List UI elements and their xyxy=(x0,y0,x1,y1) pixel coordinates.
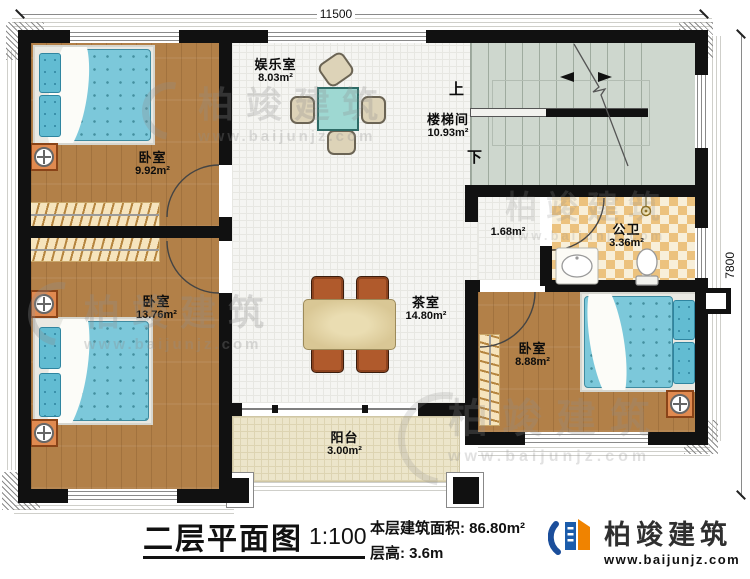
window xyxy=(68,489,177,503)
chair xyxy=(290,96,315,124)
wall-segment xyxy=(219,293,232,503)
room-label-bedroom1: 卧室9.92m² xyxy=(110,150,195,178)
lamp-icon xyxy=(670,394,690,414)
room-label-entertainment: 娱乐室8.03m² xyxy=(233,57,318,85)
column-marker xyxy=(446,472,484,508)
chair xyxy=(356,346,389,373)
wardrobe xyxy=(30,202,160,227)
stair-up-label: 上 xyxy=(449,78,464,99)
wall-segment xyxy=(426,30,708,43)
wall-segment xyxy=(18,43,31,503)
bed-pillow xyxy=(39,53,61,93)
top-dimension-value: 11500 xyxy=(286,7,386,21)
nightstand xyxy=(30,290,58,318)
wall-segment xyxy=(695,148,708,228)
wall-segment xyxy=(232,403,242,416)
room-label-bedroom2: 卧室13.76m² xyxy=(114,294,199,322)
sliding-door-stop xyxy=(362,405,368,413)
bottom-right-sill-lines xyxy=(478,447,710,456)
wall-segment xyxy=(465,280,480,292)
plan-scale: 1:100 xyxy=(309,523,367,550)
plan-title: 二层平面图 xyxy=(143,514,303,558)
floor-plan-canvas: 卧室9.92m² 娱乐室8.03m² 楼梯间10.93m² 上 下 1.68m²… xyxy=(0,0,750,579)
right-dimension-value: 7800 xyxy=(723,252,737,279)
lamp-icon xyxy=(34,423,54,443)
sliding-door-stop xyxy=(272,405,278,413)
bed-pillow xyxy=(39,95,61,137)
room-label-bathroom: 公卫3.36m² xyxy=(584,222,669,250)
nightstand xyxy=(666,390,694,418)
window xyxy=(525,432,648,445)
brand-website: www.baijunjz.com xyxy=(604,552,740,567)
wall-segment xyxy=(695,30,708,75)
right-dimension-line xyxy=(741,35,742,497)
floor-height-text: 层高: 3.6m xyxy=(370,542,443,563)
window xyxy=(268,30,426,43)
chair xyxy=(361,96,386,124)
bed-pillow xyxy=(673,342,695,384)
stair-mid-bar xyxy=(546,109,648,117)
window xyxy=(695,228,708,278)
bed-pillow xyxy=(39,327,61,369)
chair xyxy=(311,346,344,373)
wall-segment xyxy=(219,43,232,165)
wall-segment xyxy=(545,280,708,292)
brand-text: 柏竣建筑 www.baijunjz.com xyxy=(604,513,740,567)
column-core xyxy=(232,478,249,503)
right-sill-lines xyxy=(712,36,721,441)
bottom-left-sill-lines xyxy=(14,505,234,514)
lamp-icon xyxy=(34,147,54,167)
chair xyxy=(327,130,356,155)
bedroom3-bed xyxy=(580,292,701,392)
room-label-stairwell: 楼梯间10.93m² xyxy=(403,112,493,140)
wall-segment xyxy=(418,403,478,416)
room-label-tearoom: 茶室14.80m² xyxy=(382,295,470,323)
wall-bump-out xyxy=(701,288,731,314)
window xyxy=(695,75,708,148)
wall-segment xyxy=(179,30,268,43)
bedroom1-bed xyxy=(33,45,155,145)
bed-pillow xyxy=(673,300,695,340)
nightstand xyxy=(30,419,58,447)
stair-down-label: 下 xyxy=(467,146,482,167)
nightstand xyxy=(30,143,58,171)
brand-logo xyxy=(548,510,600,562)
room-label-hallway: 1.68m² xyxy=(477,226,539,239)
bed-pillow xyxy=(39,373,61,417)
wall-segment xyxy=(18,489,68,503)
bedroom2-bed xyxy=(33,317,153,425)
lamp-icon xyxy=(34,294,54,314)
wall-segment xyxy=(465,185,708,197)
wall-segment xyxy=(465,432,525,445)
column-core xyxy=(453,477,479,504)
left-sill-lines xyxy=(7,50,16,470)
brand-logo-icon xyxy=(548,510,600,562)
room-label-bedroom3: 卧室8.88m² xyxy=(490,341,575,369)
game-table xyxy=(317,87,359,131)
brand-name: 柏竣建筑 xyxy=(604,513,740,552)
title-underline xyxy=(143,556,365,559)
wall-segment xyxy=(18,226,232,238)
floor-area-text: 本层建筑面积: 86.80m² xyxy=(370,517,525,538)
wall-segment xyxy=(465,185,478,222)
wall-segment xyxy=(18,30,70,43)
balcony-sill-lines xyxy=(222,482,478,492)
wardrobe xyxy=(30,237,160,262)
window xyxy=(70,30,179,43)
room-label-balcony: 阳台3.00m² xyxy=(302,430,387,458)
